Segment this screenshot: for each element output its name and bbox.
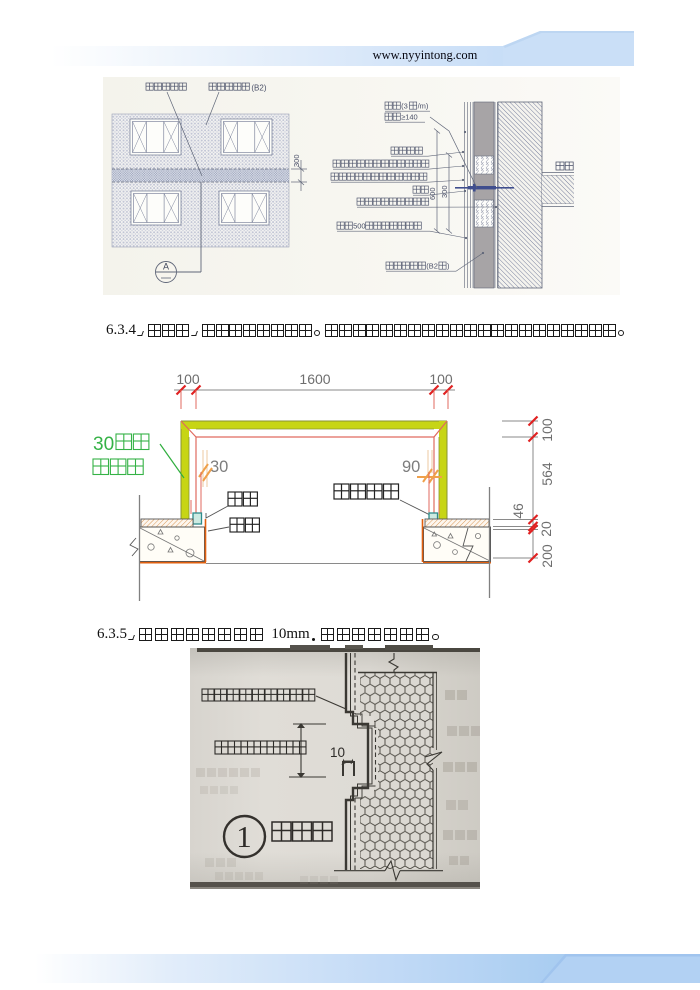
svg-text:564: 564 [539, 462, 555, 486]
svg-text:100: 100 [539, 418, 555, 442]
svg-text:600: 600 [428, 187, 437, 200]
svg-text:20: 20 [538, 521, 554, 537]
svg-text:(B2: (B2 [426, 262, 438, 271]
svg-text:300: 300 [440, 185, 449, 198]
svg-text:90: 90 [402, 458, 420, 476]
svg-text:10: 10 [330, 745, 345, 760]
svg-text:100: 100 [176, 371, 200, 387]
svg-text:≥140: ≥140 [401, 113, 418, 122]
svg-text:30: 30 [93, 434, 114, 455]
svg-text:30: 30 [210, 458, 228, 476]
svg-text:200: 200 [539, 544, 555, 568]
svg-text:1: 1 [236, 819, 252, 854]
svg-text:1600: 1600 [299, 371, 330, 387]
svg-text:500: 500 [353, 222, 366, 231]
svg-text:(B2): (B2) [251, 84, 266, 93]
svg-text:A: A [163, 262, 169, 272]
svg-text:/m): /m) [418, 102, 429, 111]
svg-text:46: 46 [510, 503, 526, 519]
svg-text:300: 300 [292, 154, 301, 167]
svg-text:100: 100 [429, 371, 453, 387]
svg-text:(3: (3 [401, 102, 408, 111]
